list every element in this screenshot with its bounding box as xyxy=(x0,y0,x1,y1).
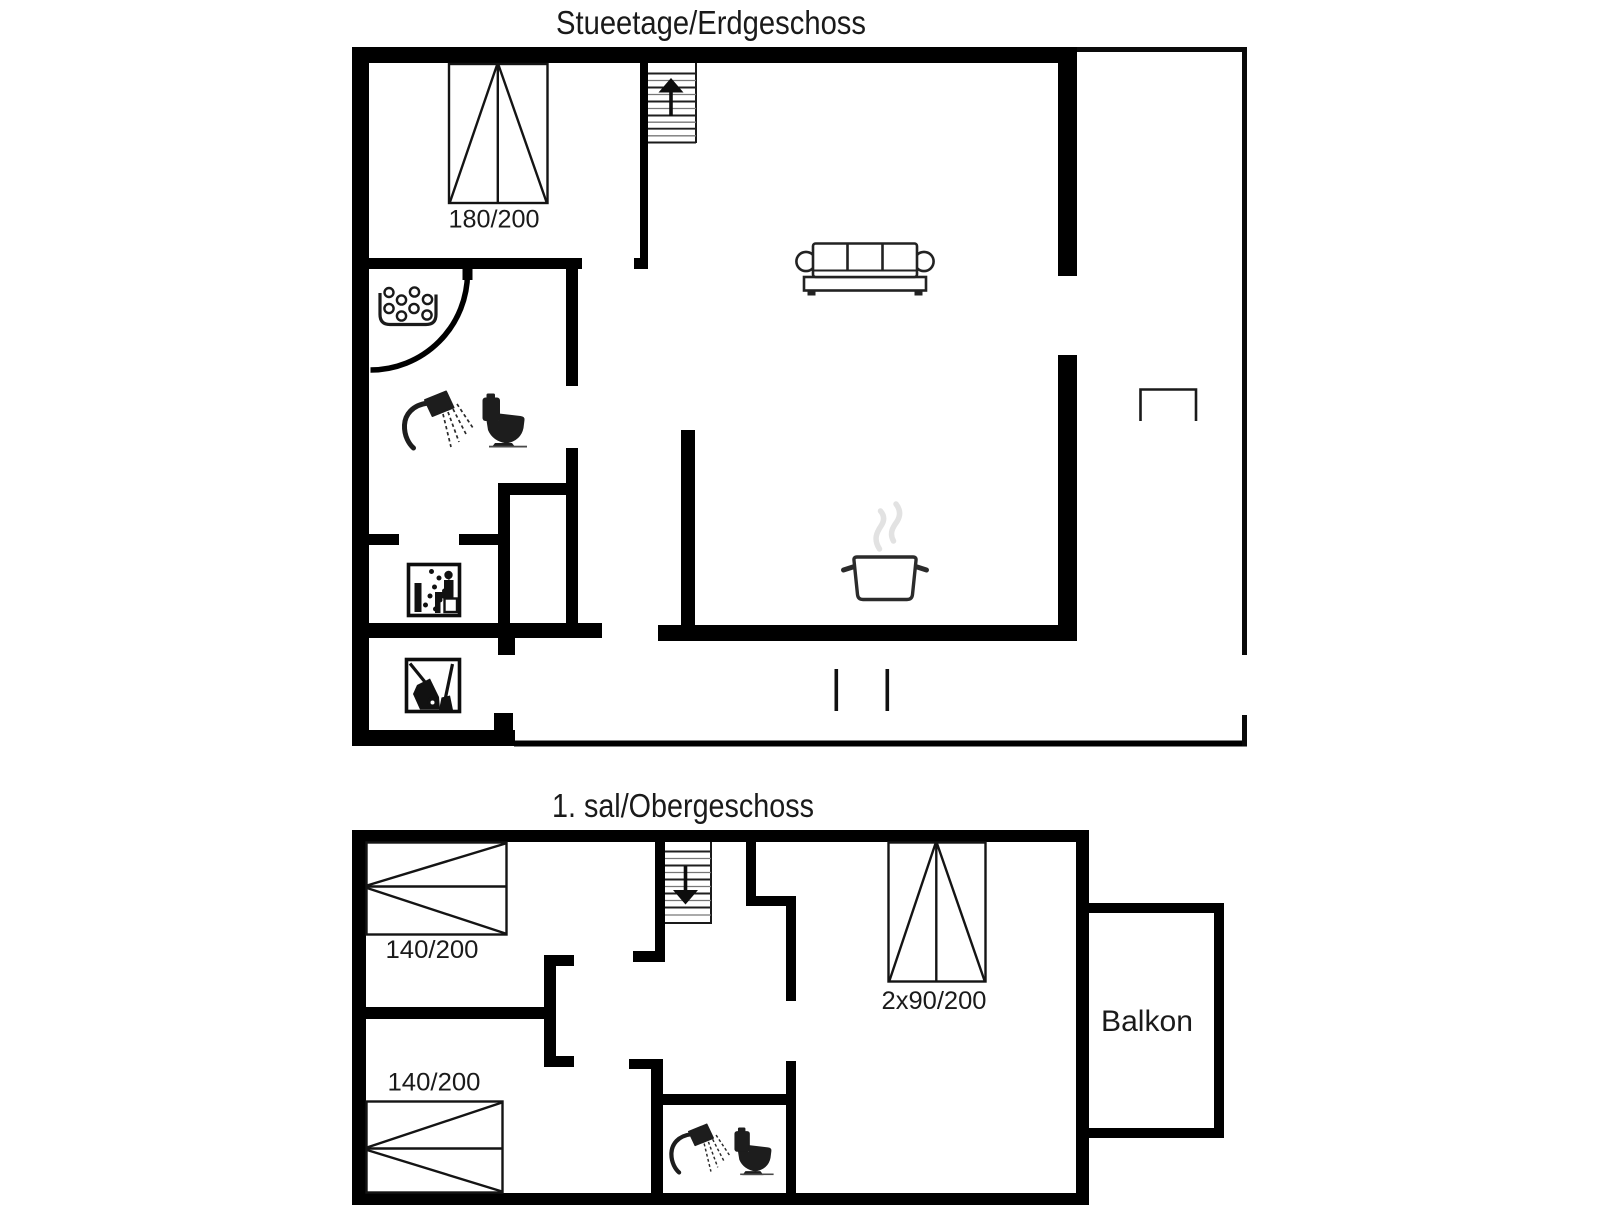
svg-text:140/200: 140/200 xyxy=(386,936,479,964)
svg-text:140/200: 140/200 xyxy=(388,1069,481,1097)
svg-text:Stueetage/Erdgeschoss: Stueetage/Erdgeschoss xyxy=(556,4,866,41)
svg-text:180/200: 180/200 xyxy=(449,206,540,234)
svg-text:2x90/200: 2x90/200 xyxy=(882,987,987,1015)
svg-text:1. sal/Obergeschoss: 1. sal/Obergeschoss xyxy=(552,787,814,824)
svg-text:Balkon: Balkon xyxy=(1101,1005,1193,1038)
